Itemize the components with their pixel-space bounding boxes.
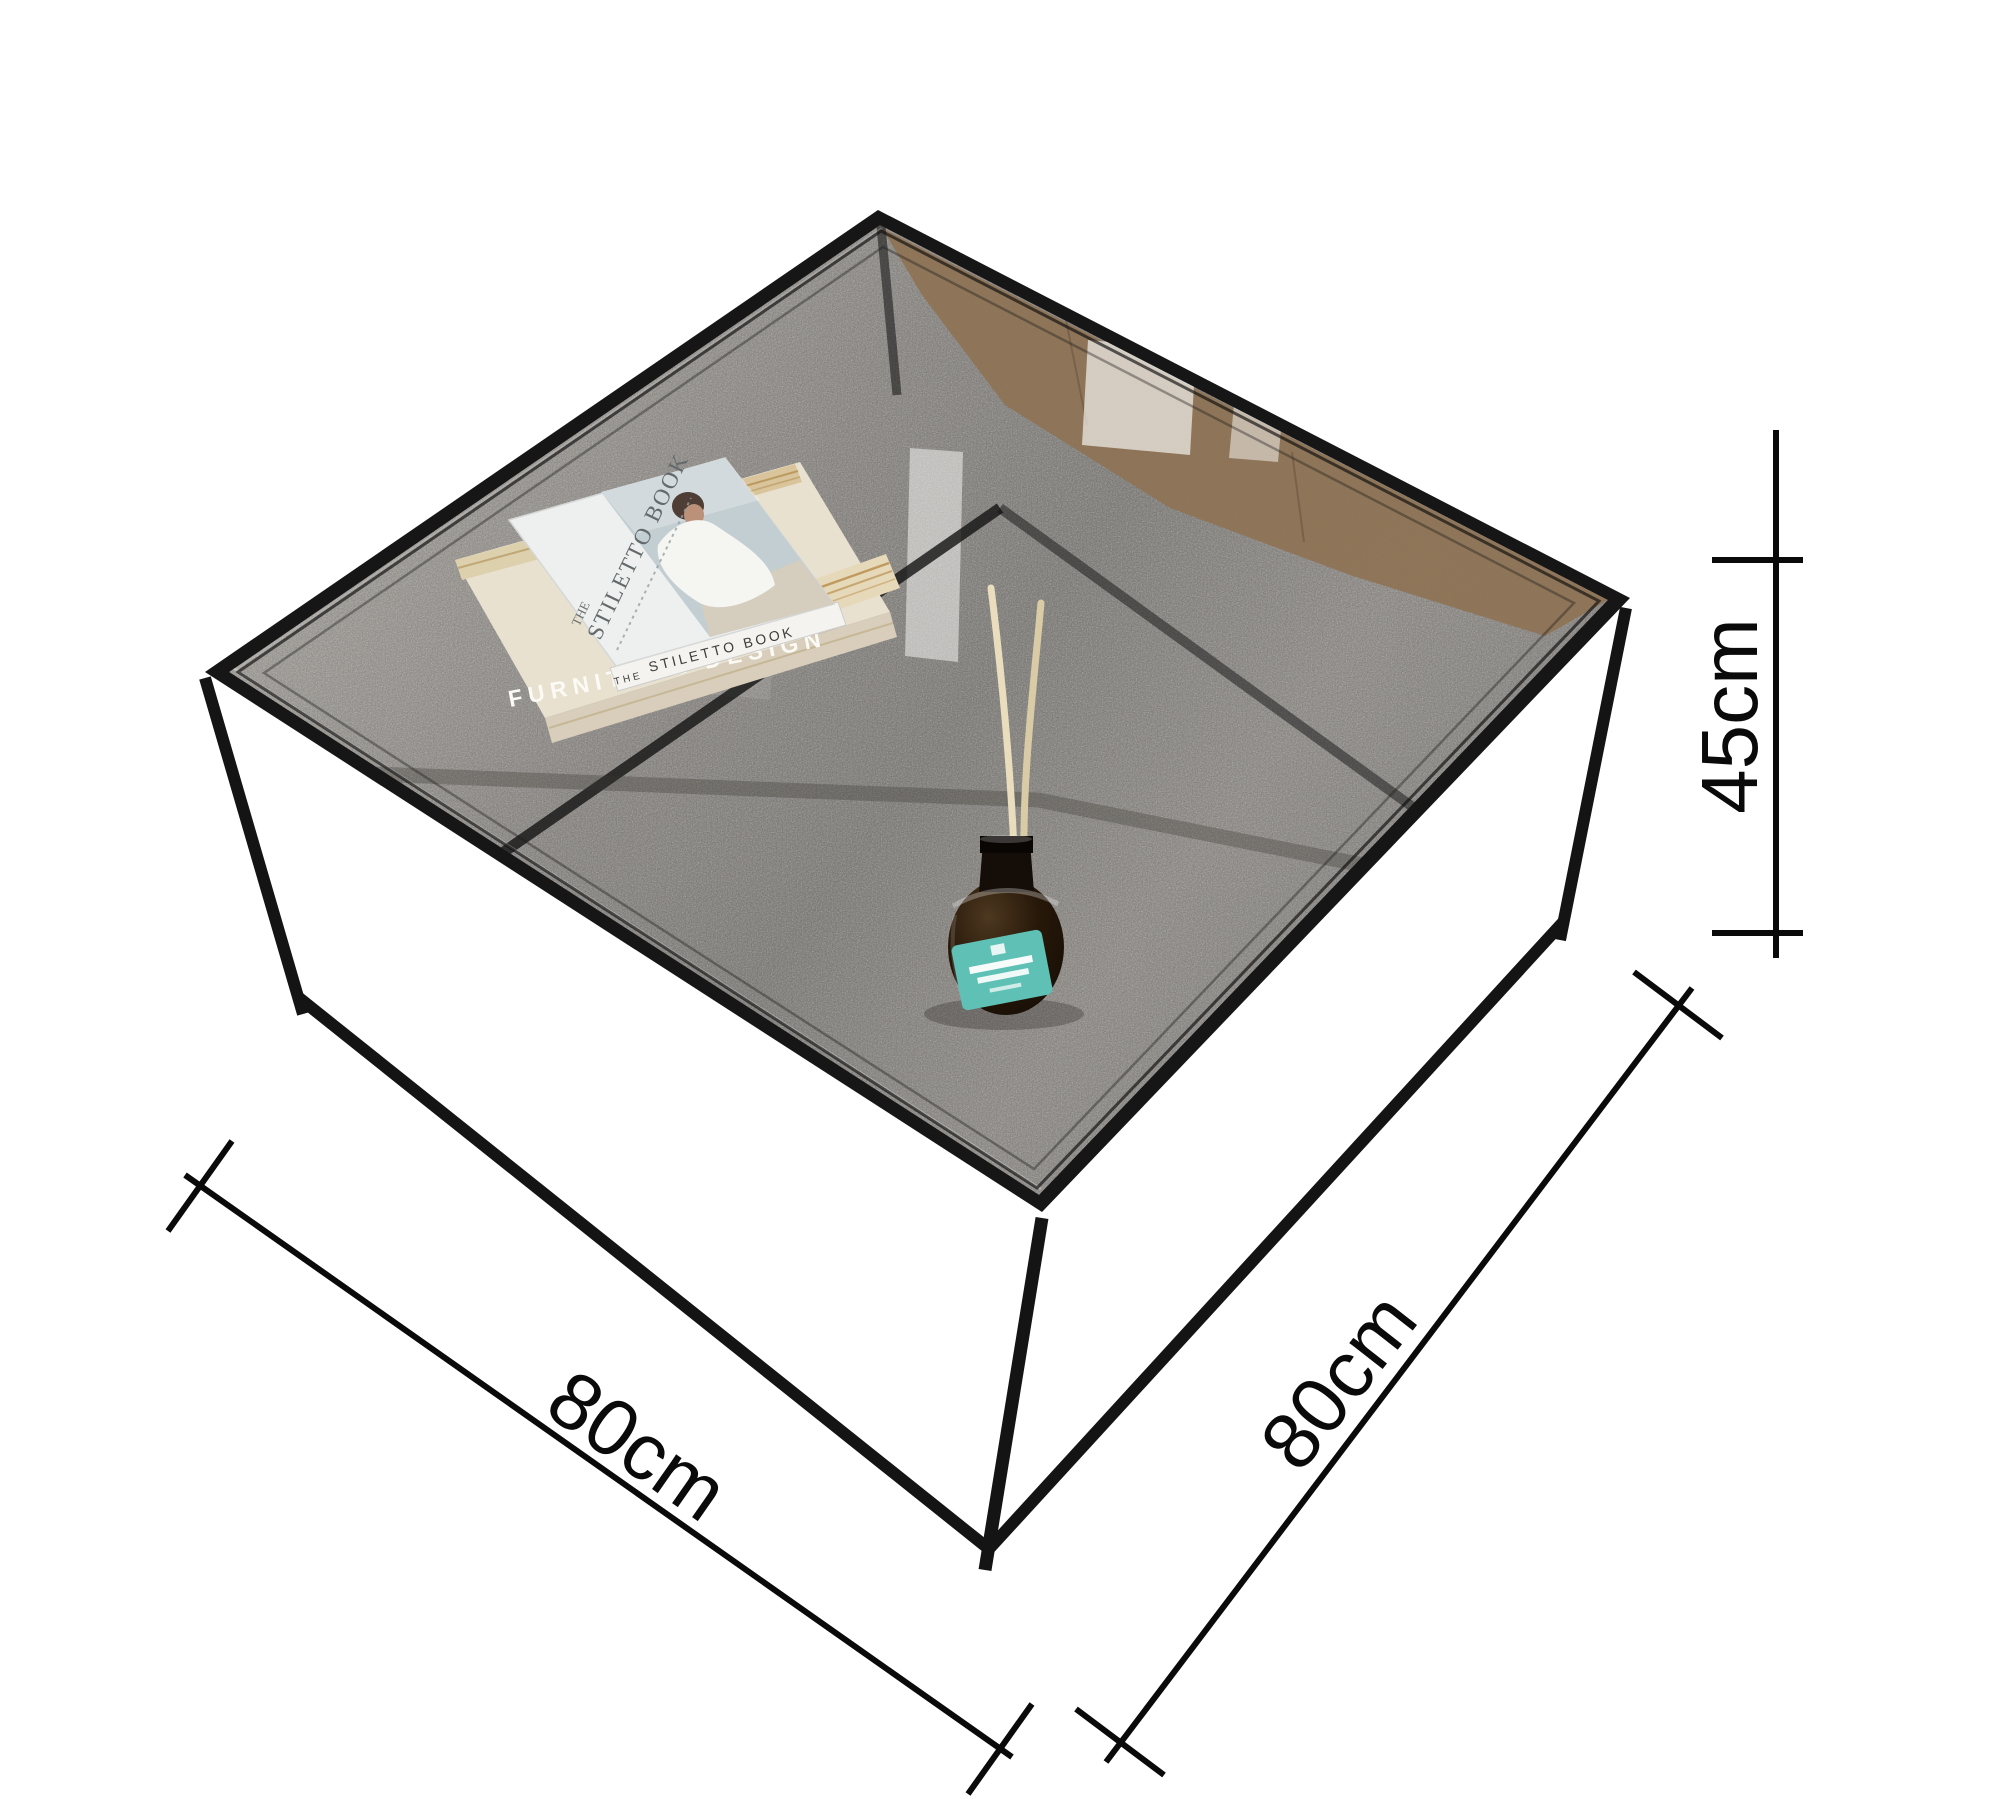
carpet-speckle-dark bbox=[229, 225, 1608, 1195]
glass-panel: FURNITURE DESIGN THE STILETTO BOOK bbox=[229, 216, 1608, 1195]
table-leg-left bbox=[205, 678, 303, 1014]
dimension-depth-tick bbox=[1634, 972, 1722, 1038]
dimension-width-tick bbox=[968, 1704, 1032, 1794]
product-dimension-image: FURNITURE DESIGN THE STILETTO BOOK bbox=[0, 0, 2000, 1820]
dimension-width-tick bbox=[168, 1141, 232, 1231]
dimension-height: 45cm bbox=[1685, 430, 1803, 958]
coffee-table: FURNITURE DESIGN THE STILETTO BOOK bbox=[205, 210, 1630, 1570]
dimension-width-label: 80cm bbox=[532, 1353, 743, 1538]
dimension-depth-tick bbox=[1076, 1709, 1164, 1775]
diffuser-cap-highlight bbox=[980, 835, 1032, 843]
dimension-height-label: 45cm bbox=[1685, 618, 1774, 814]
scene-canvas: FURNITURE DESIGN THE STILETTO BOOK bbox=[0, 0, 2000, 1820]
